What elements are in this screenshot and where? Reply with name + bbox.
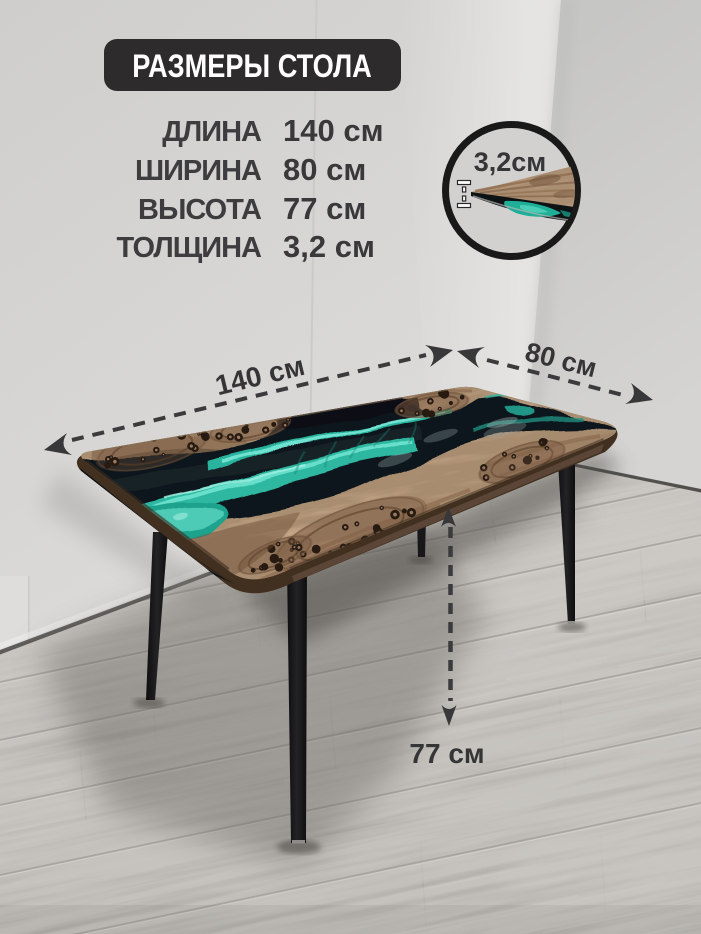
svg-text:ШИРИНА: ШИРИНА xyxy=(135,155,262,187)
svg-text:ВЫСОТА: ВЫСОТА xyxy=(138,194,262,226)
svg-text:3,2 см: 3,2 см xyxy=(283,229,375,264)
svg-text:ТОЛЩИНА: ТОЛЩИНА xyxy=(117,232,263,264)
svg-text:ДЛИНА: ДЛИНА xyxy=(162,116,262,148)
svg-text:80 см: 80 см xyxy=(283,152,366,187)
svg-text:77 см: 77 см xyxy=(283,191,366,226)
svg-text:140 см: 140 см xyxy=(283,113,384,148)
svg-text:77 см: 77 см xyxy=(409,738,484,769)
svg-text:РАЗМЕРЫ СТОЛА: РАЗМЕРЫ СТОЛА xyxy=(132,49,372,85)
svg-text:3,2см: 3,2см xyxy=(474,147,547,177)
